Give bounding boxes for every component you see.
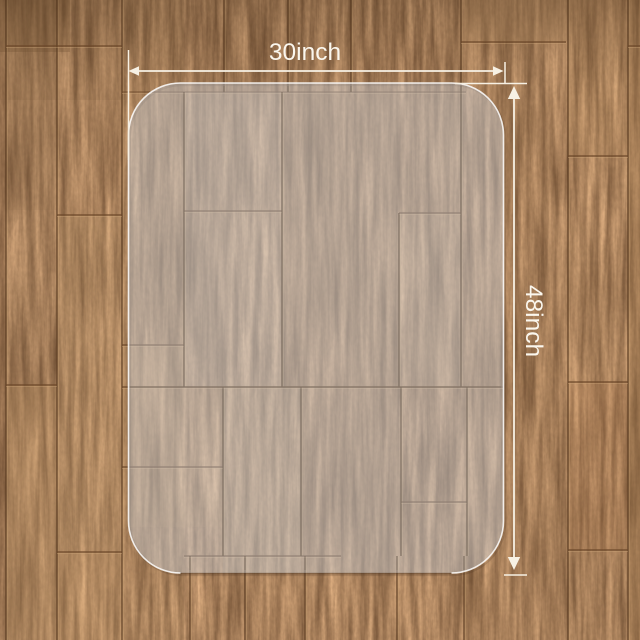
svg-text:30inch: 30inch <box>269 39 341 66</box>
svg-text:48inch: 48inch <box>520 285 547 357</box>
